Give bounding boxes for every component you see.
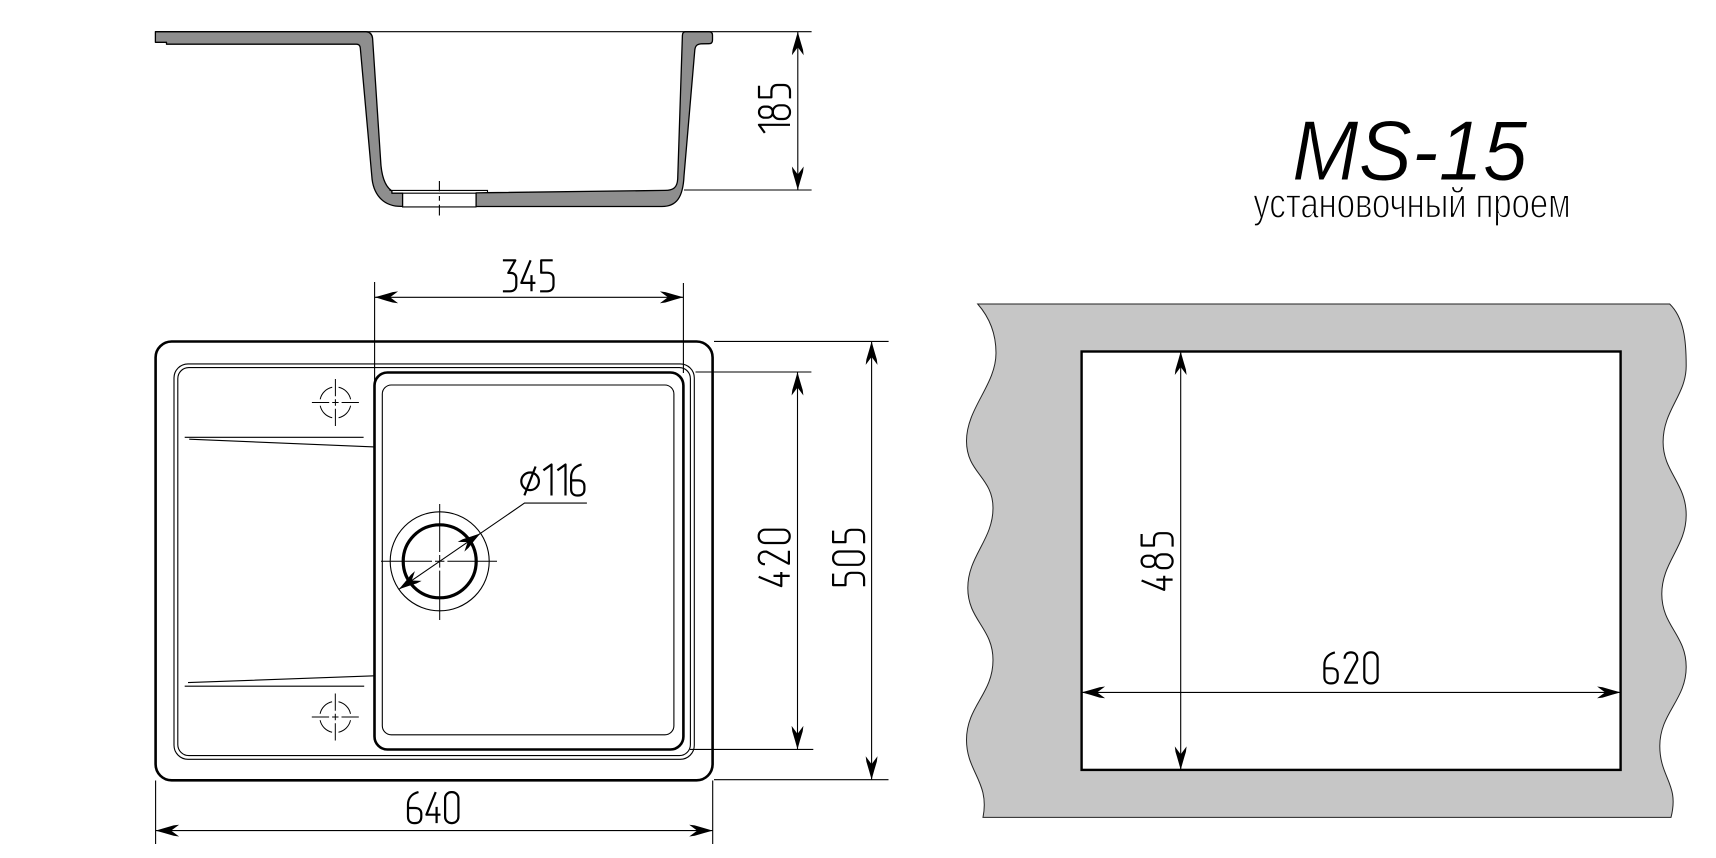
svg-text:установочный проем: установочный проем <box>1253 180 1570 227</box>
